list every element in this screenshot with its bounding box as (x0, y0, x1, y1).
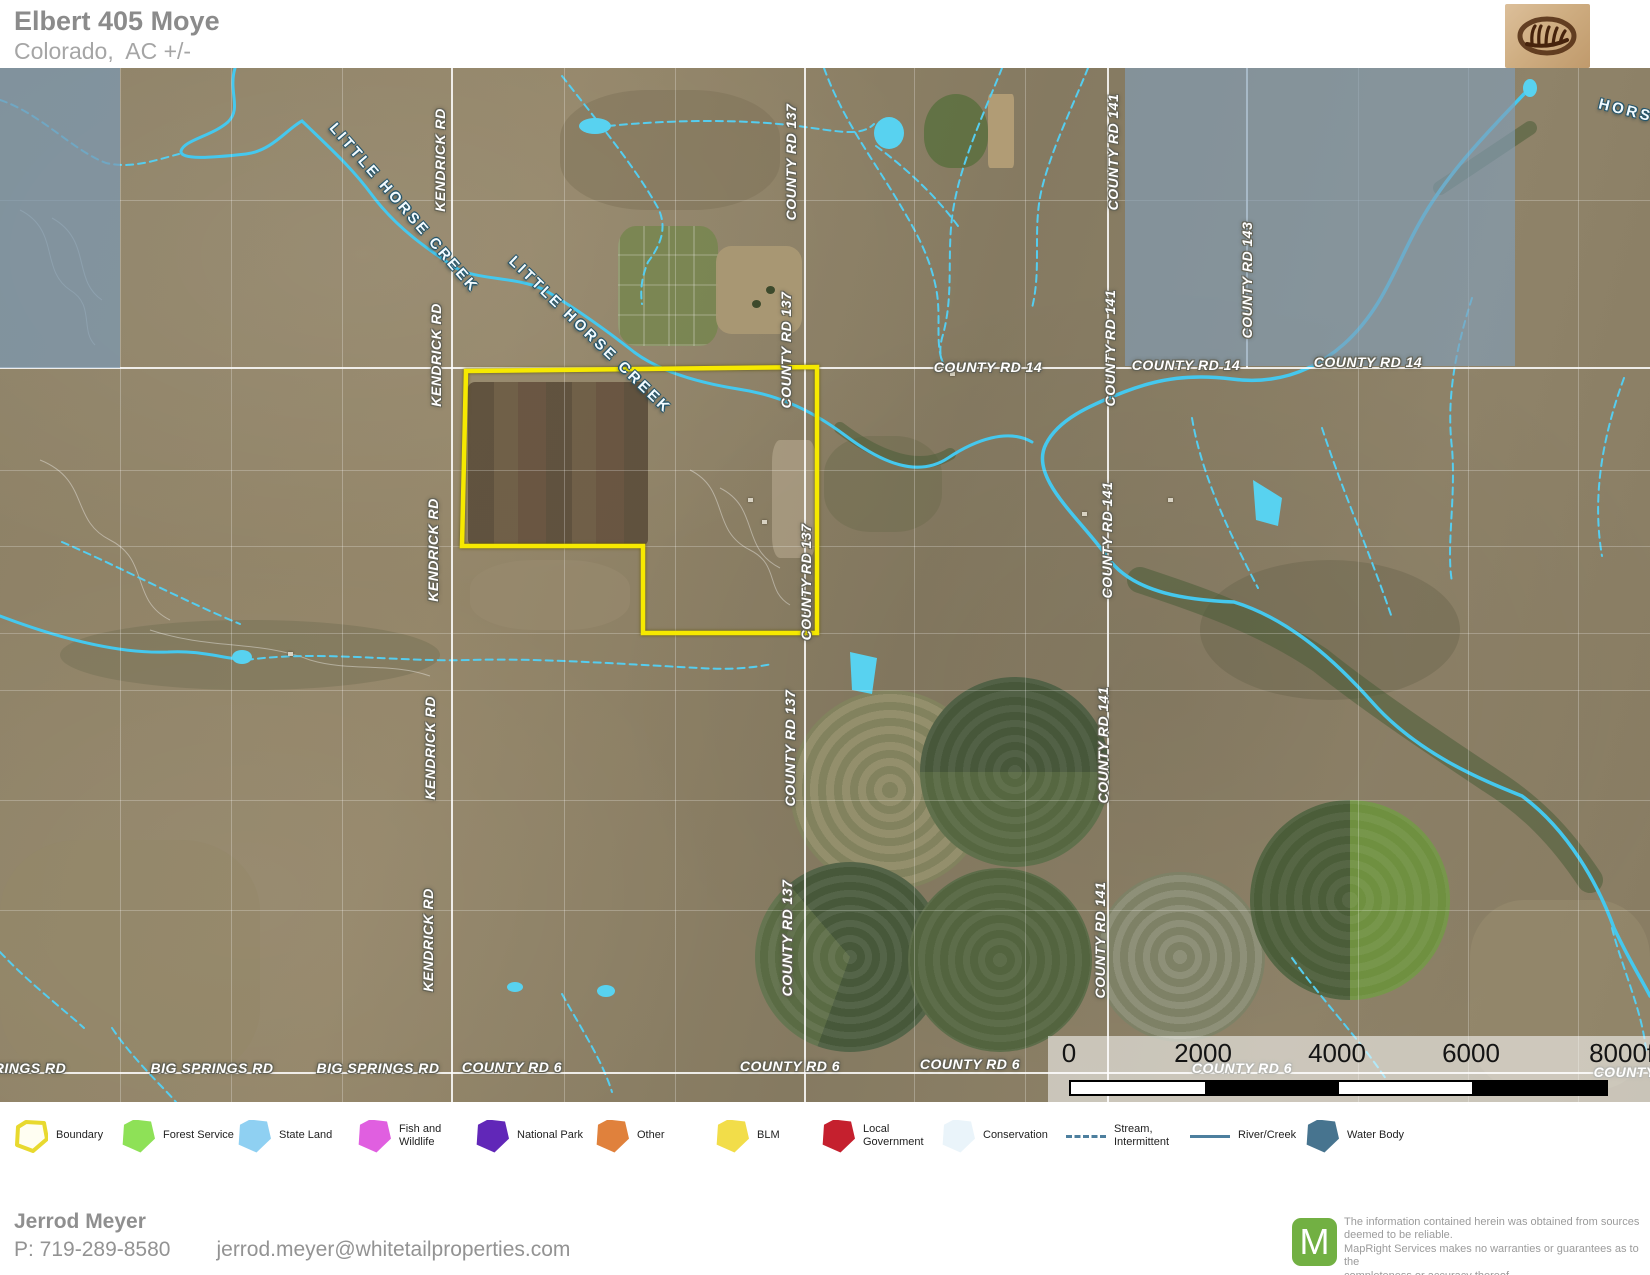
legend-item: State Land (238, 1114, 351, 1158)
scalebar-segment (1071, 1082, 1205, 1094)
legend-item: Forest Service (122, 1114, 235, 1158)
legend-item: BLM (716, 1114, 829, 1158)
road-label: COUNTY RD 143 (1239, 222, 1255, 339)
scalebar-tick-label: 6000 (1442, 1038, 1500, 1069)
road-label: COUNTY RD 141 (1095, 687, 1111, 804)
road-label: COUNTY RD 141 (1092, 882, 1108, 999)
legend-label: River/Creek (1238, 1129, 1310, 1142)
road-label: KENDRICK RD (428, 303, 444, 407)
legend-boundary-icon (14, 1119, 48, 1153)
legend-item: Water Body (1306, 1114, 1419, 1158)
agent-contact: P: 719-289-8580jerrod.meyer@whitetailpro… (14, 1238, 570, 1262)
road-label: KENDRICK RD (432, 108, 448, 212)
road-label: COUNTY RD 141 (1105, 94, 1121, 211)
road-label: COUNTY RD 6 (462, 1059, 562, 1075)
legend-item: Local Government (822, 1114, 935, 1158)
creek-label: HORSE (1597, 95, 1650, 128)
road-label: KENDRICK RD (420, 888, 436, 992)
road-label: COUNTY RD 14 (1314, 354, 1422, 370)
road-label: COUNTY RD 141 (1102, 290, 1118, 407)
whitetail-antler-logo-icon (1505, 4, 1590, 68)
legend-item: Conservation (942, 1114, 1055, 1158)
legend-label: Boundary (56, 1129, 128, 1142)
legend-label: Stream, Intermittent (1114, 1123, 1186, 1149)
road-label: COUNTY RD 6 (740, 1058, 840, 1074)
legend-label: Local Government (863, 1123, 935, 1149)
road-label: COUNTY RD 137 (798, 524, 814, 641)
scalebar-tick-label: 2000 (1174, 1038, 1232, 1069)
legend-area-swatch-icon (942, 1120, 975, 1153)
creek-label: LITTLE HORSE CREEK (505, 253, 674, 417)
legend-area-swatch-icon (1306, 1120, 1339, 1153)
satellite-map: KENDRICK RDKENDRICK RDKENDRICK RDKENDRIC… (0, 68, 1650, 1102)
page-subtitle: Colorado, AC +/- (14, 38, 191, 65)
mapright-logo: M (1292, 1218, 1337, 1266)
road-label: COUNTY RD 137 (778, 292, 794, 409)
disclaimer-text: The information contained herein was obt… (1344, 1216, 1650, 1275)
legend-river-line-icon (1190, 1135, 1230, 1138)
creek-label: LITTLE HORSE CREEK (326, 120, 483, 296)
scale-bar-segments (1069, 1080, 1608, 1096)
scalebar-tick-label: 4000 (1308, 1038, 1366, 1069)
road-label: COUNTY RD 137 (779, 880, 795, 997)
scale-bar: 02000400060008000ft (1048, 1036, 1650, 1102)
legend-area-swatch-icon (596, 1120, 629, 1153)
legend-item: Boundary (14, 1114, 128, 1158)
antler-oval-graphic (1505, 4, 1590, 68)
legend-label: Water Body (1347, 1129, 1419, 1142)
legend-label: Other (637, 1129, 709, 1142)
scalebar-segment (1205, 1082, 1339, 1094)
page-title: Elbert 405 Moye (14, 6, 220, 37)
agent-email: jerrod.meyer@whitetailproperties.com (216, 1238, 570, 1261)
scalebar-tick-label: 8000ft (1589, 1038, 1650, 1069)
legend-item: River/Creek (1190, 1114, 1310, 1158)
road-label: COUNTY RD 6 (920, 1056, 1020, 1072)
agent-name: Jerrod Meyer (14, 1210, 146, 1234)
road-label: COUNTY RD 137 (783, 104, 799, 221)
road-label: BIG SPRINGS RD (317, 1060, 440, 1076)
mapright-logo-letter: M (1300, 1221, 1330, 1263)
road-label: RINGS RD (0, 1060, 66, 1076)
scalebar-segment (1339, 1082, 1473, 1094)
road-label: COUNTY RD 141 (1099, 482, 1115, 599)
legend-label: Fish and Wildlife (399, 1123, 471, 1149)
agent-phone: P: 719-289-8580 (14, 1238, 170, 1261)
legend-label: Forest Service (163, 1129, 235, 1142)
footer: Jerrod Meyer P: 719-289-8580jerrod.meyer… (0, 1170, 1650, 1275)
header: Elbert 405 Moye Colorado, AC +/- (0, 0, 1650, 68)
scalebar-tick-label: 0 (1062, 1038, 1076, 1069)
legend-item: Fish and Wildlife (358, 1114, 471, 1158)
legend-stream-line-icon (1066, 1135, 1106, 1138)
road-label: BIG SPRINGS RD (151, 1060, 274, 1076)
legend-area-swatch-icon (358, 1120, 391, 1153)
scalebar-segment (1472, 1082, 1606, 1094)
legend-item: National Park (476, 1114, 589, 1158)
legend-label: BLM (757, 1129, 829, 1142)
legend-item: Other (596, 1114, 709, 1158)
legend-label: State Land (279, 1129, 351, 1142)
legend: BoundaryForest ServiceState LandFish and… (0, 1102, 1650, 1170)
road-label: COUNTY RD 14 (1132, 357, 1240, 373)
legend-label: Conservation (983, 1129, 1055, 1142)
map-sheet: Elbert 405 Moye Colorado, AC +/- (0, 0, 1650, 1275)
map-labels: KENDRICK RDKENDRICK RDKENDRICK RDKENDRIC… (0, 68, 1650, 1102)
legend-area-swatch-icon (822, 1120, 855, 1153)
legend-area-swatch-icon (476, 1120, 509, 1153)
legend-area-swatch-icon (716, 1120, 749, 1153)
road-label: COUNTY RD 14 (934, 359, 1042, 375)
legend-item: Stream, Intermittent (1066, 1114, 1186, 1158)
legend-area-swatch-icon (122, 1120, 155, 1153)
road-label: COUNTY RD 137 (782, 690, 798, 807)
legend-label: National Park (517, 1129, 589, 1142)
road-label: KENDRICK RD (425, 498, 441, 602)
road-label: KENDRICK RD (422, 696, 438, 800)
legend-area-swatch-icon (238, 1120, 271, 1153)
